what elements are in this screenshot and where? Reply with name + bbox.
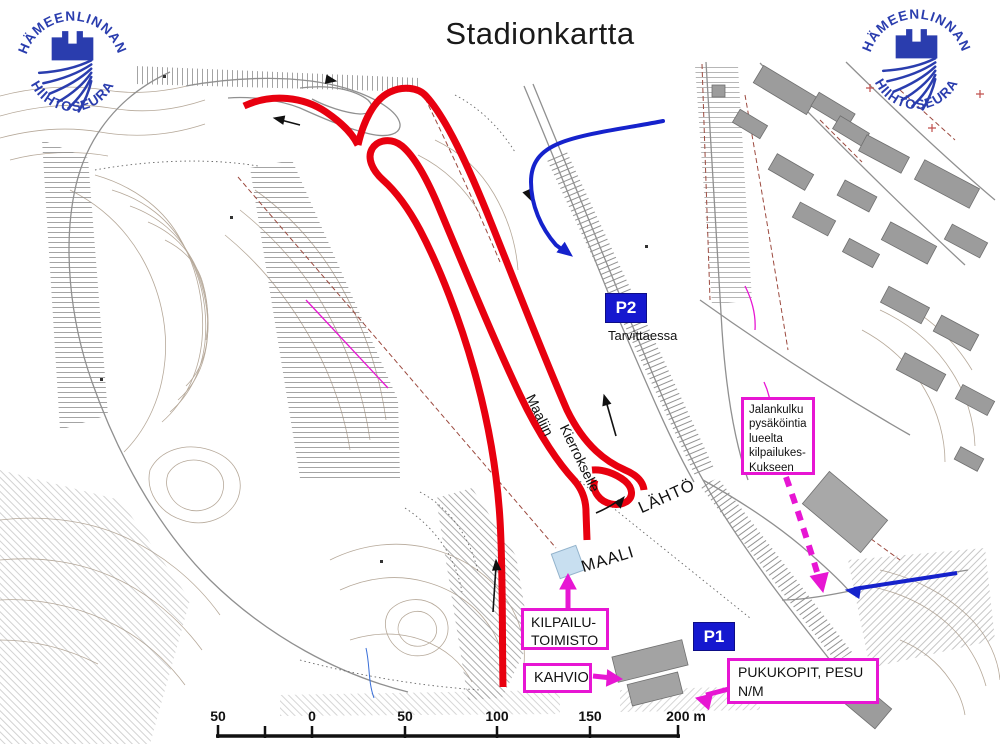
parking-marker-p1: P1 xyxy=(694,623,734,650)
route-top-west xyxy=(244,98,358,145)
club-logo-right: HÄMEENLINNAN HIIHTOSEURA xyxy=(854,0,979,125)
scale-bar xyxy=(216,725,680,738)
club-logo-left: HÄMEENLINNAN HIIHTOSEURA xyxy=(10,2,135,127)
stream-line xyxy=(366,648,374,698)
callout-race-office: KILPAILU- TOIMISTO xyxy=(521,608,609,650)
stadium-map-page: HÄMEENLINNAN HIIHTOSEURA HÄMEENLINNAN HI… xyxy=(0,0,1000,744)
scale-label-50-left: 50 xyxy=(210,708,226,724)
hatch-bands xyxy=(0,66,995,744)
callout-cafe: KAHVIO xyxy=(523,663,592,693)
callout-dressing-rooms: PUKUKOPIT, PESU N/M xyxy=(727,658,879,704)
page-title: Stadionkartta xyxy=(445,16,634,52)
label-tarvittaessa: Tarvittaessa xyxy=(608,328,677,343)
parking-marker-p2: P2 xyxy=(606,294,646,322)
map-canvas xyxy=(0,0,1000,744)
castle-icon xyxy=(896,29,938,58)
scale-label-100: 100 xyxy=(485,708,508,724)
castle-icon xyxy=(52,31,94,60)
scale-label-200m: 200 m xyxy=(666,708,706,724)
scale-label-0: 0 xyxy=(308,708,316,724)
scale-label-150: 150 xyxy=(578,708,601,724)
scale-label-50: 50 xyxy=(397,708,413,724)
callout-walking-route: Jalankulku pysäköintia lueelta kilpailuk… xyxy=(741,397,815,475)
